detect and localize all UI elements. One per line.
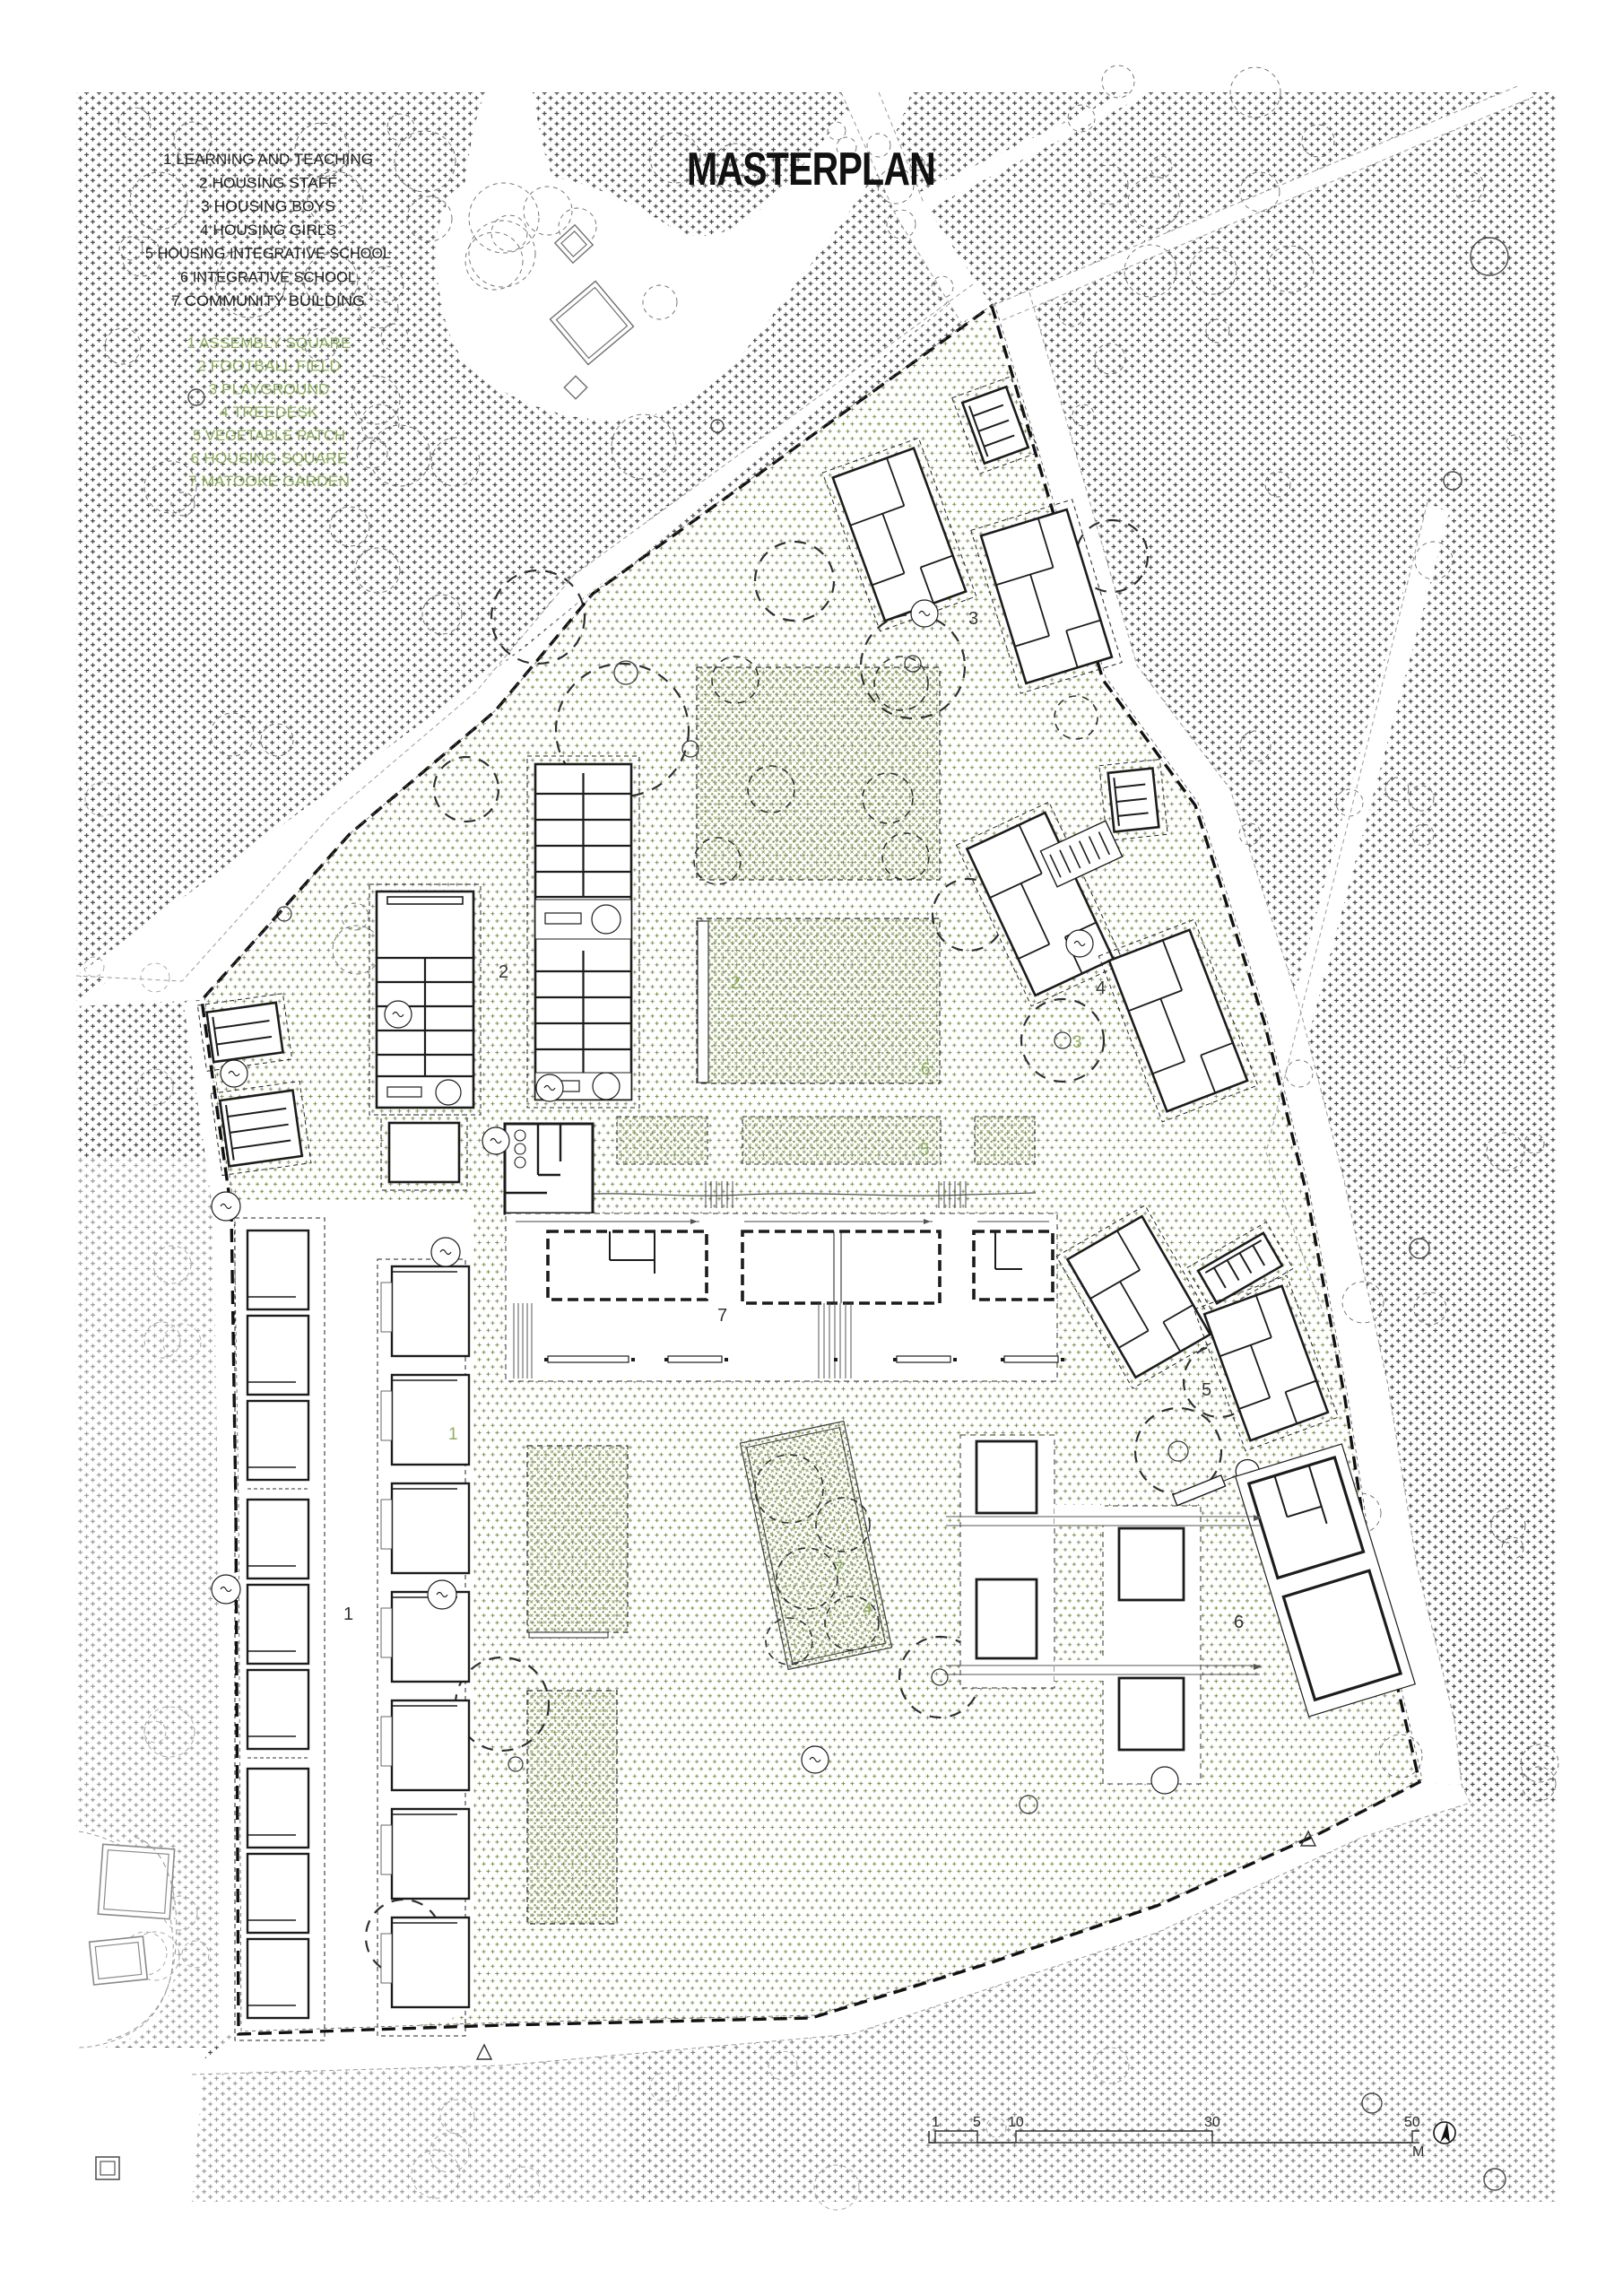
svg-text:1: 1 xyxy=(448,1425,458,1444)
svg-text:2: 2 xyxy=(731,974,741,993)
svg-text:2: 2 xyxy=(499,962,508,982)
svg-text:4: 4 xyxy=(1096,978,1106,998)
svg-text:6 HOUSING SQUARE: 6 HOUSING SQUARE xyxy=(191,450,348,467)
svg-text:7 MATOOKE GARDEN: 7 MATOOKE GARDEN xyxy=(188,473,350,490)
svg-text:3: 3 xyxy=(968,609,978,629)
svg-text:7: 7 xyxy=(717,1306,727,1326)
svg-text:2 HOUSING STAFF: 2 HOUSING STAFF xyxy=(199,174,337,191)
svg-text:5: 5 xyxy=(1202,1380,1211,1400)
svg-text:5 VEGETABLE PATCH: 5 VEGETABLE PATCH xyxy=(193,427,345,444)
svg-text:3: 3 xyxy=(1072,1033,1082,1052)
svg-text:M: M xyxy=(1412,2144,1424,2160)
svg-text:5: 5 xyxy=(920,1141,930,1160)
svg-text:1: 1 xyxy=(343,1605,353,1624)
svg-text:6 INTEGRATIVE SCHOOL: 6 INTEGRATIVE SCHOOL xyxy=(180,269,356,286)
svg-text:6: 6 xyxy=(921,1060,931,1079)
svg-text:4 HOUSING GIRLS: 4 HOUSING GIRLS xyxy=(200,222,336,239)
svg-text:4 TREEDESK: 4 TREEDESK xyxy=(220,404,319,421)
svg-text:10: 10 xyxy=(1008,2115,1024,2130)
svg-text:5: 5 xyxy=(973,2115,981,2130)
svg-text:4: 4 xyxy=(863,1600,872,1619)
svg-text:7: 7 xyxy=(834,1560,844,1578)
svg-text:3 HOUSING BOYS: 3 HOUSING BOYS xyxy=(201,198,335,215)
svg-text:30: 30 xyxy=(1204,2115,1220,2130)
svg-text:5 HOUSING INTEGRATIVE SCHOOL: 5 HOUSING INTEGRATIVE SCHOOL xyxy=(145,245,391,262)
svg-text:6: 6 xyxy=(1234,1613,1244,1632)
svg-text:50: 50 xyxy=(1404,2115,1420,2130)
svg-text:7 COMMUNITY BUILDING: 7 COMMUNITY BUILDING xyxy=(171,292,365,309)
svg-text:1: 1 xyxy=(932,2115,940,2130)
svg-text:1 ASSEMBLY SQUARE: 1 ASSEMBLY SQUARE xyxy=(187,335,352,352)
svg-text:MASTERPLAN: MASTERPLAN xyxy=(687,143,935,196)
svg-text:2 FOOTBALL FIELD: 2 FOOTBALL FIELD xyxy=(197,358,341,375)
svg-text:3 PLAYGROUND: 3 PLAYGROUND xyxy=(209,380,330,397)
svg-text:1 LEARNING AND TEACHING: 1 LEARNING AND TEACHING xyxy=(163,151,373,168)
